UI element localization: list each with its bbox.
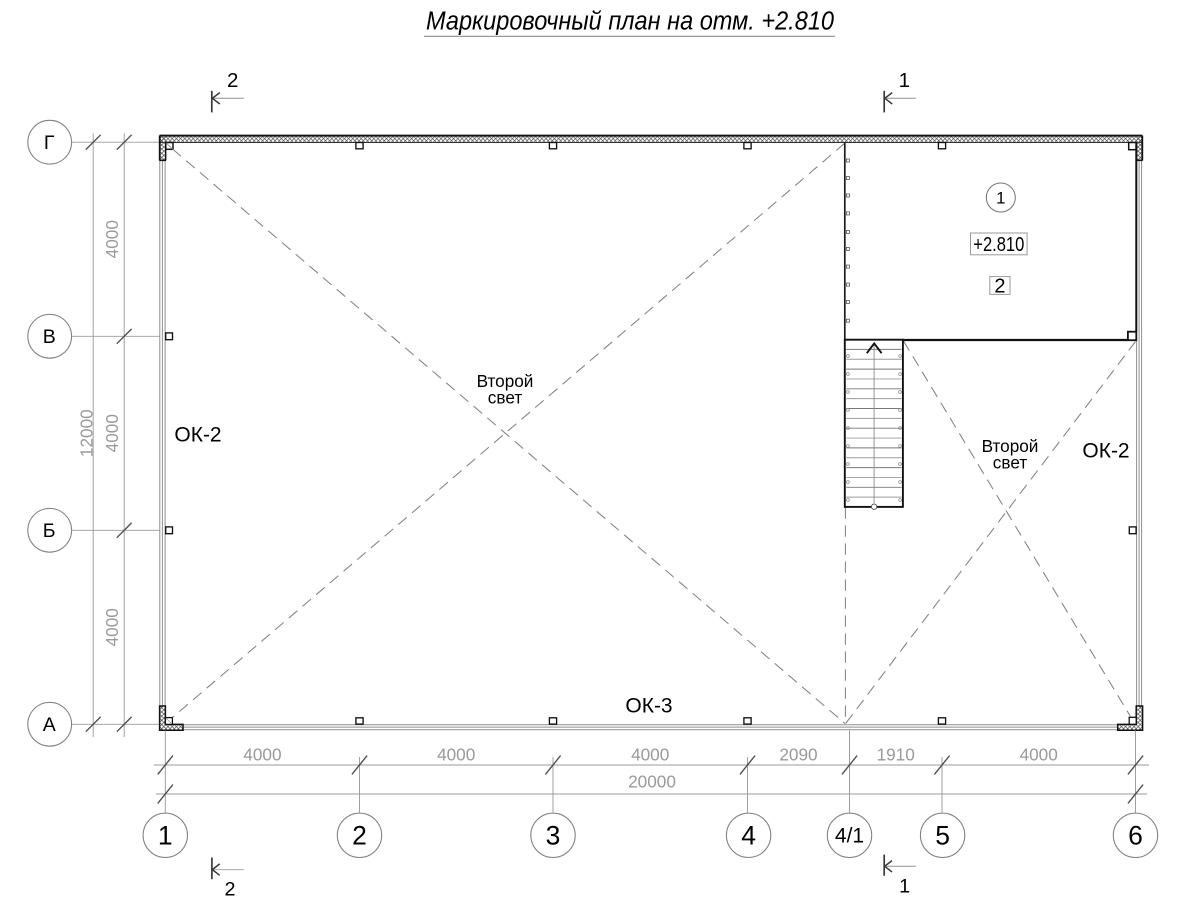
svg-text:А: А: [43, 714, 56, 736]
svg-text:ОК-2: ОК-2: [174, 423, 221, 446]
svg-text:4/1: 4/1: [835, 825, 864, 848]
svg-text:4000: 4000: [1020, 745, 1058, 765]
svg-text:2: 2: [227, 69, 238, 92]
svg-text:12000: 12000: [76, 409, 96, 457]
svg-text:свет: свет: [993, 453, 1028, 473]
svg-text:1: 1: [899, 69, 910, 92]
svg-text:2090: 2090: [779, 745, 817, 765]
svg-text:Г: Г: [44, 132, 55, 154]
svg-text:Маркировочный план на отм. +2.: Маркировочный план на отм. +2.810: [426, 6, 834, 36]
svg-text:4000: 4000: [243, 745, 281, 765]
svg-text:ОК-3: ОК-3: [625, 695, 672, 718]
svg-text:Б: Б: [43, 520, 56, 542]
svg-text:4000: 4000: [102, 220, 122, 258]
svg-text:свет: свет: [488, 388, 523, 408]
svg-text:20000: 20000: [628, 772, 676, 792]
svg-text:4000: 4000: [631, 745, 669, 765]
svg-text:+2.810: +2.810: [973, 234, 1024, 256]
svg-text:5: 5: [935, 821, 950, 851]
svg-text:6: 6: [1128, 821, 1143, 851]
svg-text:4000: 4000: [437, 745, 475, 765]
svg-text:1: 1: [899, 876, 910, 898]
svg-text:4000: 4000: [102, 414, 122, 452]
svg-text:4000: 4000: [102, 608, 122, 646]
svg-text:2: 2: [352, 821, 367, 851]
svg-text:В: В: [43, 326, 56, 348]
svg-text:1: 1: [996, 188, 1005, 207]
svg-text:1: 1: [158, 821, 173, 851]
svg-text:3: 3: [546, 821, 561, 851]
svg-text:2: 2: [224, 879, 235, 900]
svg-text:1910: 1910: [877, 745, 915, 765]
svg-text:4: 4: [741, 821, 756, 851]
svg-text:2: 2: [994, 275, 1005, 297]
svg-text:ОК-2: ОК-2: [1082, 440, 1129, 463]
